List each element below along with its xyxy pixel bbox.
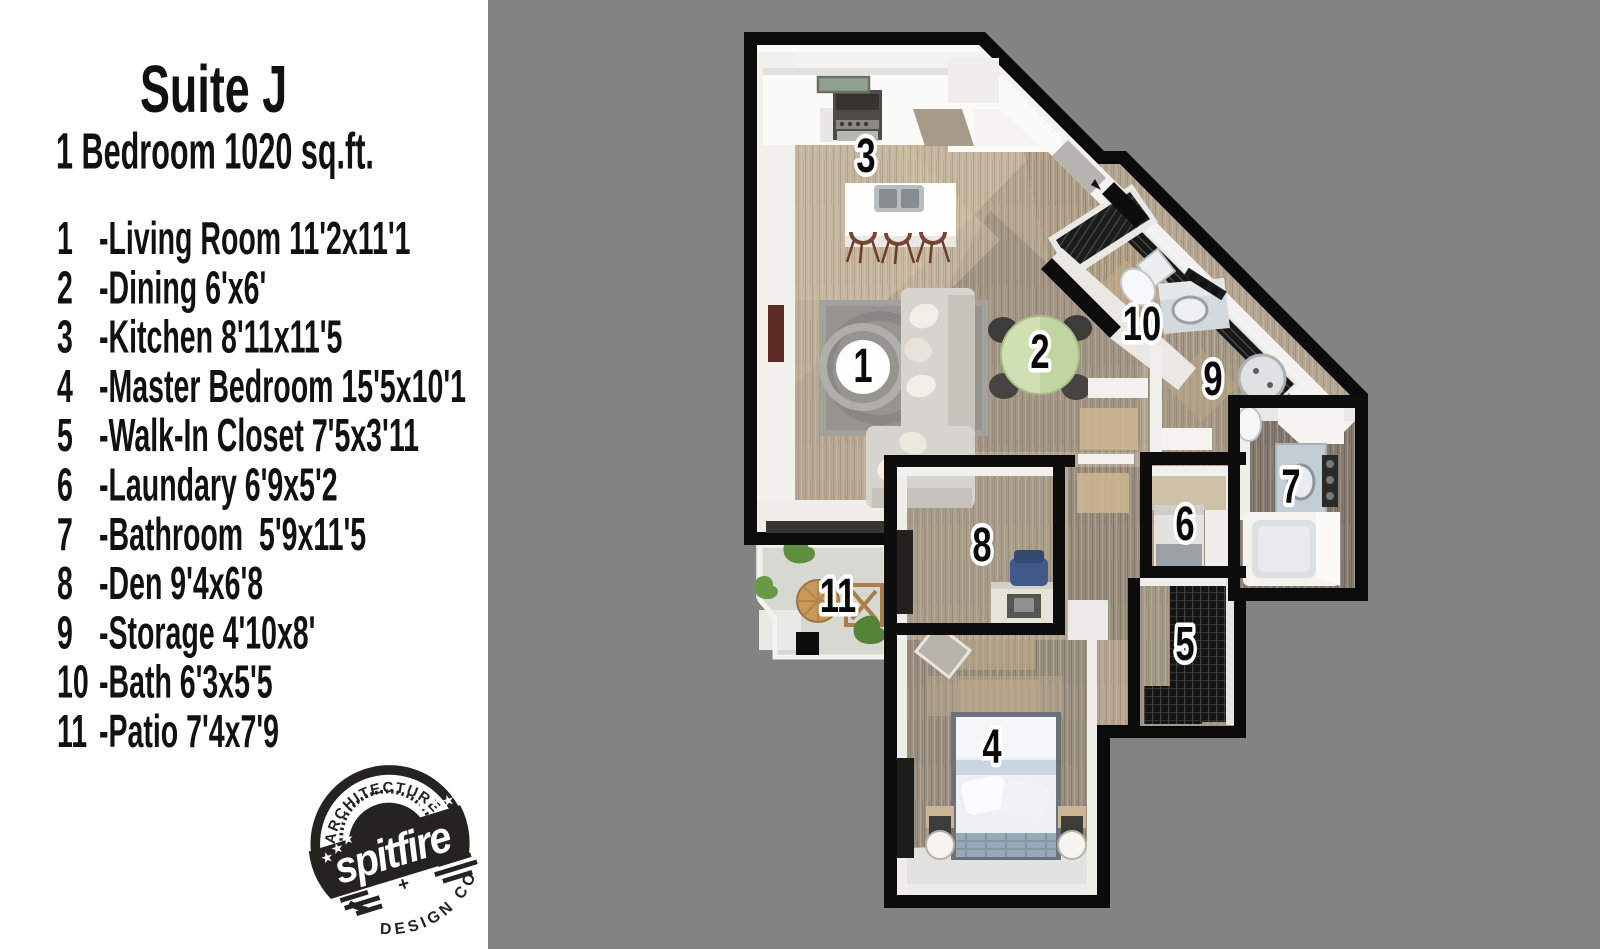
- svg-text:9: 9: [1203, 351, 1222, 405]
- svg-text:5: 5: [57, 410, 73, 462]
- svg-text:1: 1: [57, 213, 73, 265]
- svg-text:1 Bedroom 1020 sq.ft.: 1 Bedroom 1020 sq.ft.: [56, 122, 374, 179]
- svg-text:-Kitchen 8'11x11'5: -Kitchen 8'11x11'5: [99, 312, 342, 364]
- svg-text:1: 1: [853, 338, 872, 392]
- svg-text:-Patio 7'4x7'9: -Patio 7'4x7'9: [99, 706, 279, 758]
- svg-text:6: 6: [1175, 496, 1194, 550]
- svg-text:11: 11: [57, 706, 87, 758]
- svg-text:8: 8: [972, 517, 991, 571]
- svg-text:-Walk-In Closet 7'5x3'11: -Walk-In Closet 7'5x3'11: [99, 410, 419, 462]
- svg-text:-Master Bedroom 15'5x10'1: -Master Bedroom 15'5x10'1: [99, 361, 466, 413]
- svg-text:-Den 9'4x6'8: -Den 9'4x6'8: [99, 558, 263, 610]
- svg-text:-Bath 6'3x5'5: -Bath 6'3x5'5: [99, 657, 273, 709]
- svg-text:7: 7: [57, 509, 73, 561]
- svg-text:8: 8: [57, 558, 73, 610]
- svg-text:10: 10: [1123, 296, 1161, 350]
- svg-text:6: 6: [57, 460, 73, 512]
- svg-text:Suite J: Suite J: [140, 52, 287, 127]
- svg-text:7: 7: [1281, 459, 1300, 513]
- svg-text:5: 5: [1175, 616, 1194, 670]
- svg-text:10: 10: [57, 657, 89, 709]
- svg-text:3: 3: [856, 128, 875, 182]
- svg-text:4: 4: [982, 719, 1002, 773]
- svg-text:-Dining 6'x6': -Dining 6'x6': [99, 262, 266, 314]
- svg-text:-Storage 4'10x8': -Storage 4'10x8': [99, 608, 315, 660]
- svg-text:9: 9: [57, 608, 73, 660]
- svg-text:-Bathroom 5'9x11'5: -Bathroom 5'9x11'5: [99, 509, 366, 561]
- svg-text:2: 2: [57, 262, 73, 314]
- svg-text:2: 2: [1030, 324, 1049, 378]
- svg-text:11: 11: [820, 568, 857, 622]
- svg-text:4: 4: [57, 361, 73, 413]
- svg-text:3: 3: [57, 312, 73, 364]
- svg-text:-Laundary 6'9x5'2: -Laundary 6'9x5'2: [99, 460, 338, 512]
- svg-text:-Living Room 11'2x11'1: -Living Room 11'2x11'1: [99, 213, 411, 265]
